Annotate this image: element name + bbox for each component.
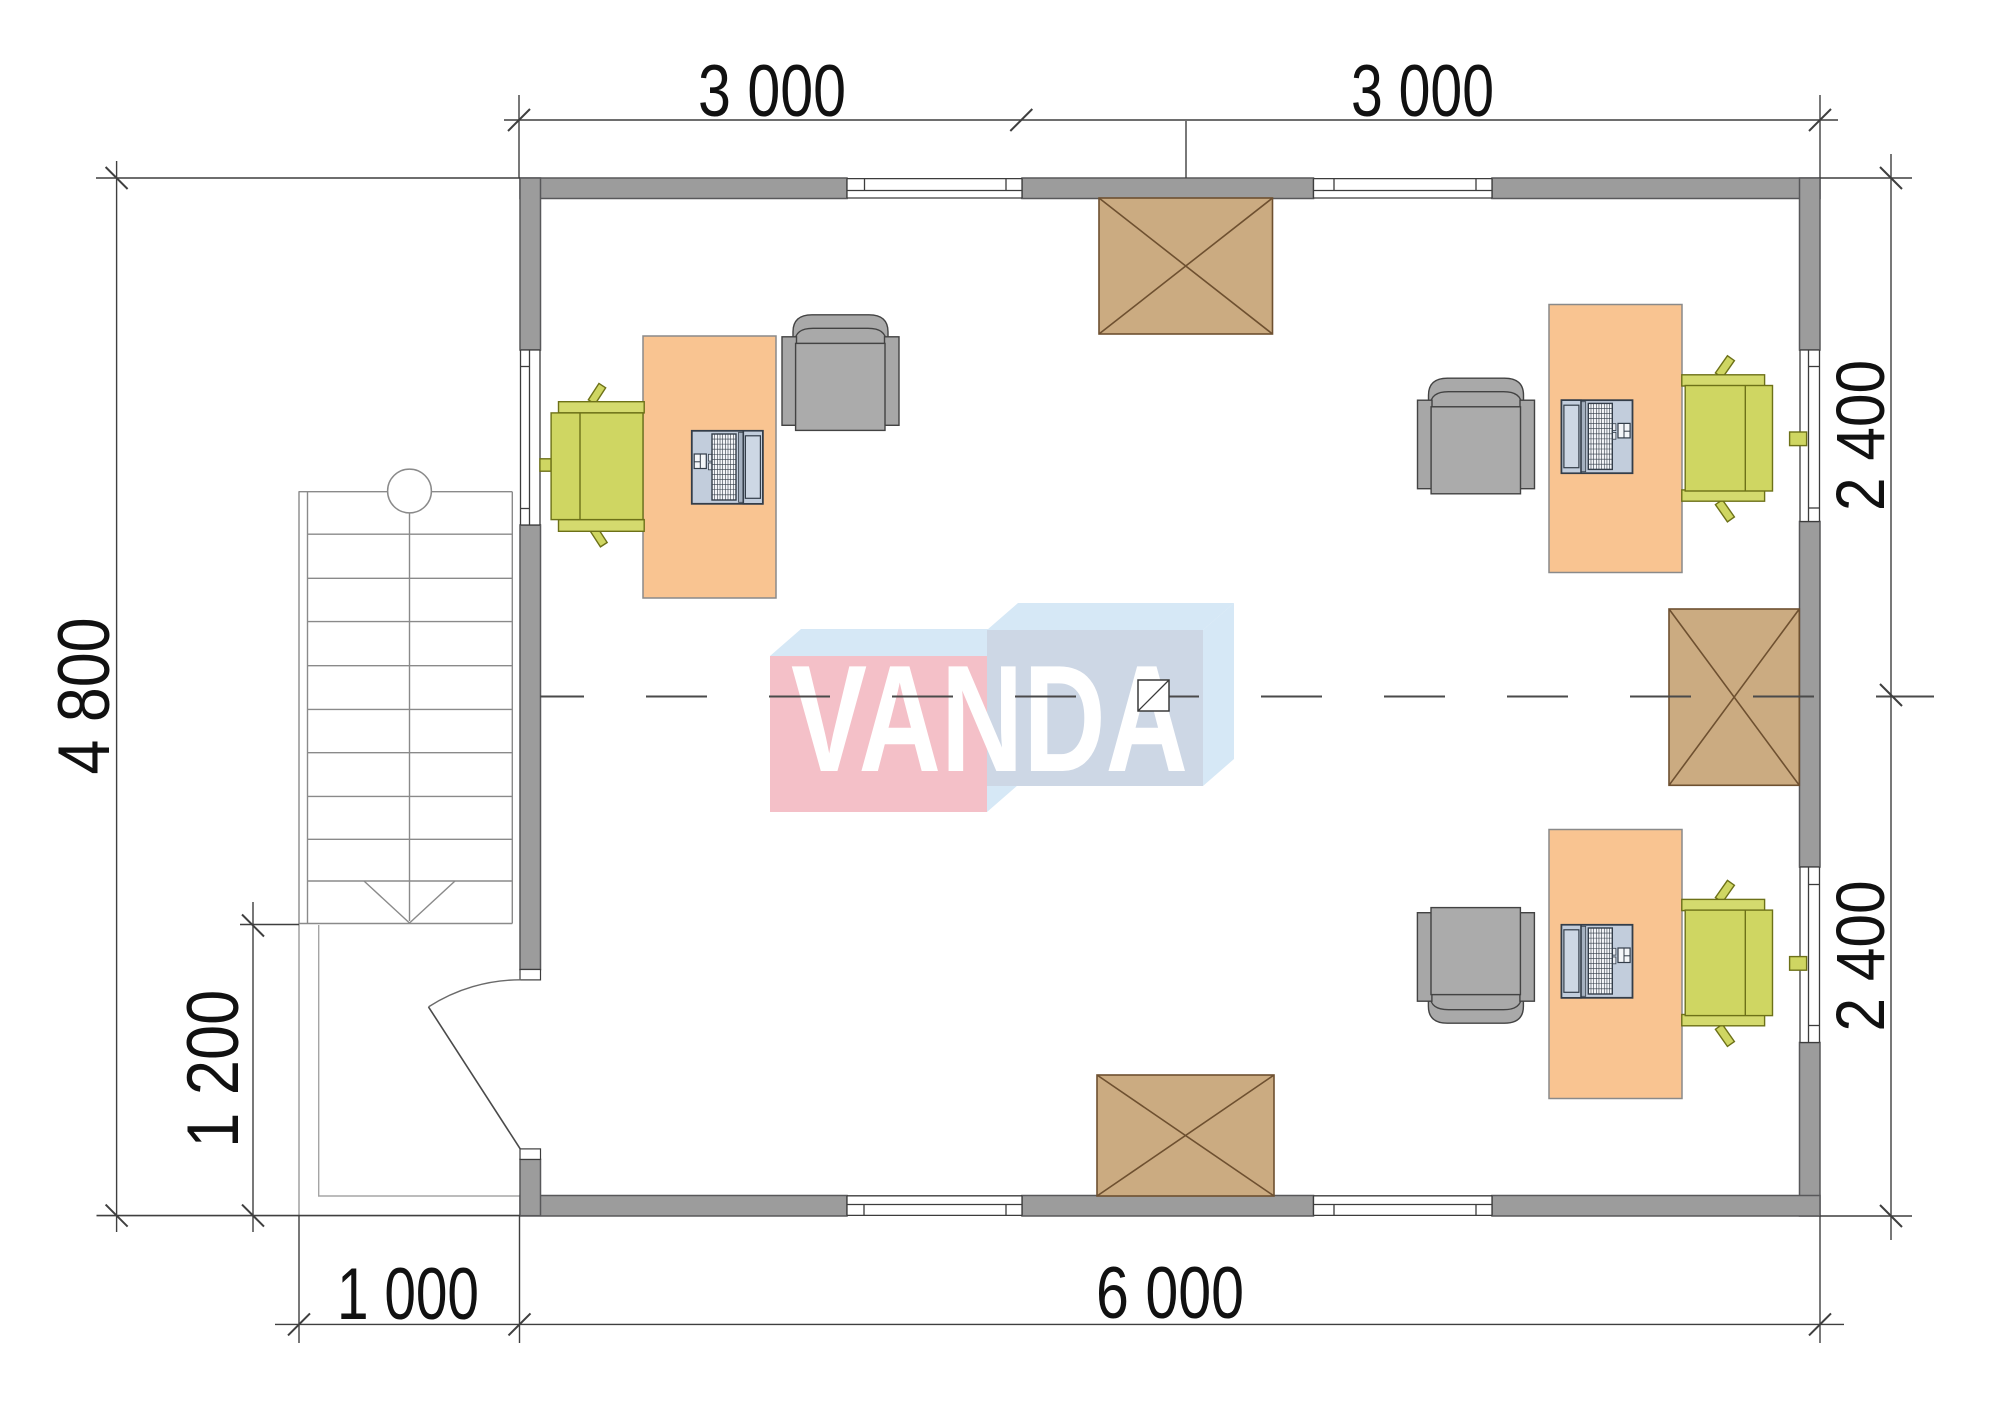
svg-text:6 000: 6 000	[1096, 1253, 1244, 1334]
svg-text:1 000: 1 000	[337, 1254, 479, 1335]
svg-text:3 000: 3 000	[1351, 51, 1494, 132]
svg-text:3 000: 3 000	[698, 51, 846, 132]
svg-text:2 400: 2 400	[1822, 360, 1899, 511]
svg-text:2 400: 2 400	[1822, 881, 1899, 1032]
svg-text:VANDA: VANDA	[791, 634, 1188, 804]
svg-text:4 800: 4 800	[44, 618, 125, 775]
svg-text:1 200: 1 200	[173, 990, 254, 1148]
